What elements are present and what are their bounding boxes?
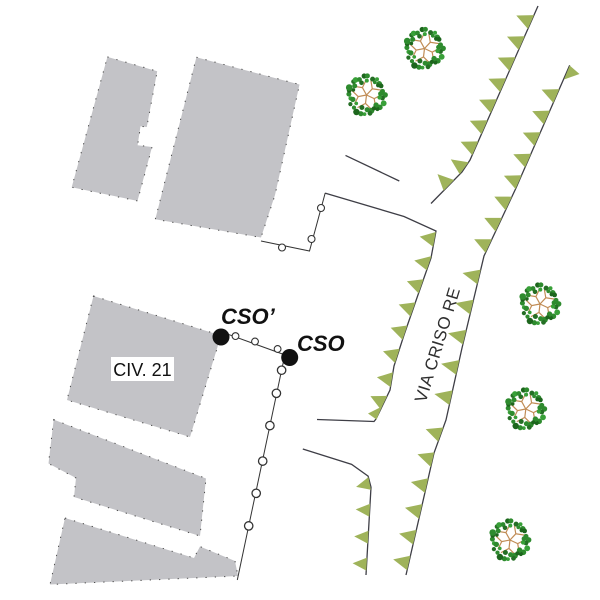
svg-text:CSO: CSO bbox=[297, 331, 345, 356]
svg-text:CSO’: CSO’ bbox=[221, 304, 276, 329]
svg-text:CIV. 21: CIV. 21 bbox=[113, 360, 171, 380]
